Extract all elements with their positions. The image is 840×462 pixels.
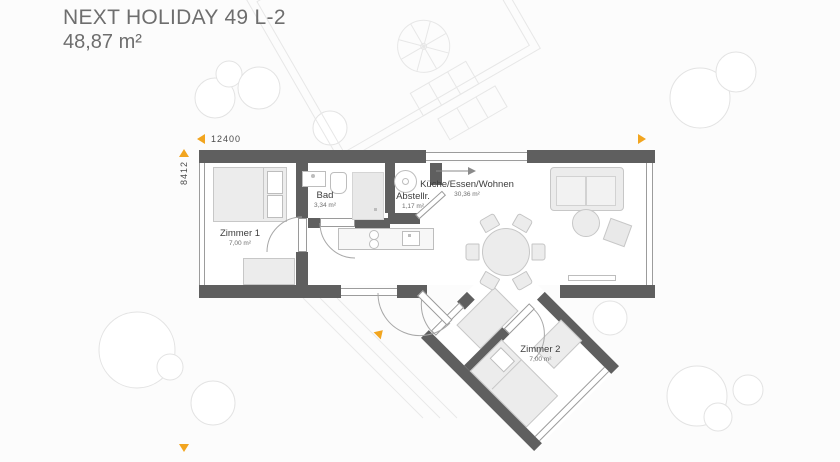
bed-divider — [263, 168, 264, 219]
room-area: 3,34 m² — [295, 202, 355, 209]
tree — [216, 61, 242, 87]
dim-arrow-left-icon — [197, 134, 205, 144]
dim-arrow-right-icon — [638, 134, 646, 144]
room-area: 1,17 m² — [385, 203, 441, 210]
room-area: 7,00 m² — [200, 240, 280, 247]
sun-lounger — [410, 61, 478, 116]
chair — [466, 244, 480, 261]
pillow — [267, 171, 283, 194]
tree — [313, 111, 347, 145]
entrance-arrow-icon — [374, 327, 387, 340]
roof-overhang-lines — [303, 298, 457, 418]
pillow — [267, 195, 283, 218]
room-name: Küche/Essen/Wohnen — [407, 180, 527, 191]
room-name: Zimmer 2 — [504, 345, 576, 356]
room-label-bad: Bad 3,34 m² — [295, 191, 355, 209]
sun-lounger — [438, 86, 507, 140]
room-label-zimmer1: Zimmer 1 7,00 m² — [200, 229, 280, 247]
wall — [527, 150, 655, 163]
dim-arrow-down-icon — [179, 444, 189, 452]
total-area: 48,87 m² — [63, 31, 142, 54]
stove-burner — [369, 239, 379, 249]
kitchen-sink — [402, 231, 420, 246]
room-name: Zimmer 1 — [200, 229, 280, 240]
page-title: NEXT HOLIDAY 49 L-2 — [63, 6, 286, 30]
wall — [308, 218, 320, 228]
tree — [195, 78, 235, 118]
tree — [670, 68, 730, 128]
bad-door-leaf — [320, 218, 355, 227]
tree — [593, 301, 627, 335]
entrance-door-leaf — [417, 290, 452, 325]
window — [199, 163, 205, 285]
dim-height-label: 8412 — [179, 153, 189, 193]
window — [646, 163, 653, 285]
tree — [667, 366, 727, 426]
shower — [352, 172, 384, 220]
shower-drain — [374, 208, 377, 211]
tree — [157, 354, 183, 380]
tree — [704, 403, 732, 431]
tree — [191, 381, 235, 425]
floorplan-canvas: NEXT HOLIDAY 49 L-2 48,87 m² Zimmer 2 7,… — [0, 0, 840, 462]
sofa-cushion — [556, 176, 586, 206]
room-area: 30,36 m² — [407, 191, 527, 198]
coffee-table — [572, 209, 600, 237]
faucet — [311, 174, 315, 178]
sliding-door-window — [426, 152, 527, 161]
parasol-icon — [388, 11, 459, 82]
sofa-cushion — [586, 176, 616, 206]
wall — [560, 285, 655, 298]
room-label-zimmer2: Zimmer 2 7,00 m² — [504, 345, 576, 363]
wall — [199, 285, 341, 298]
room-area: 7,00 m² — [504, 356, 576, 363]
tree — [99, 312, 175, 388]
tree — [716, 52, 756, 92]
window — [341, 288, 397, 296]
sideboard — [568, 275, 616, 281]
wall — [199, 150, 426, 163]
tree — [238, 67, 280, 109]
chair — [532, 244, 546, 261]
wardrobe — [243, 258, 295, 285]
room-label-wohnen: Küche/Essen/Wohnen 30,36 m² — [407, 180, 527, 198]
tree — [733, 375, 763, 405]
zimmer1-door-leaf — [298, 218, 307, 252]
room-name: Bad — [295, 191, 355, 202]
wall — [296, 252, 308, 285]
dim-width-label: 12400 — [211, 134, 241, 144]
dining-table — [482, 228, 530, 276]
sink-drain — [408, 234, 411, 237]
